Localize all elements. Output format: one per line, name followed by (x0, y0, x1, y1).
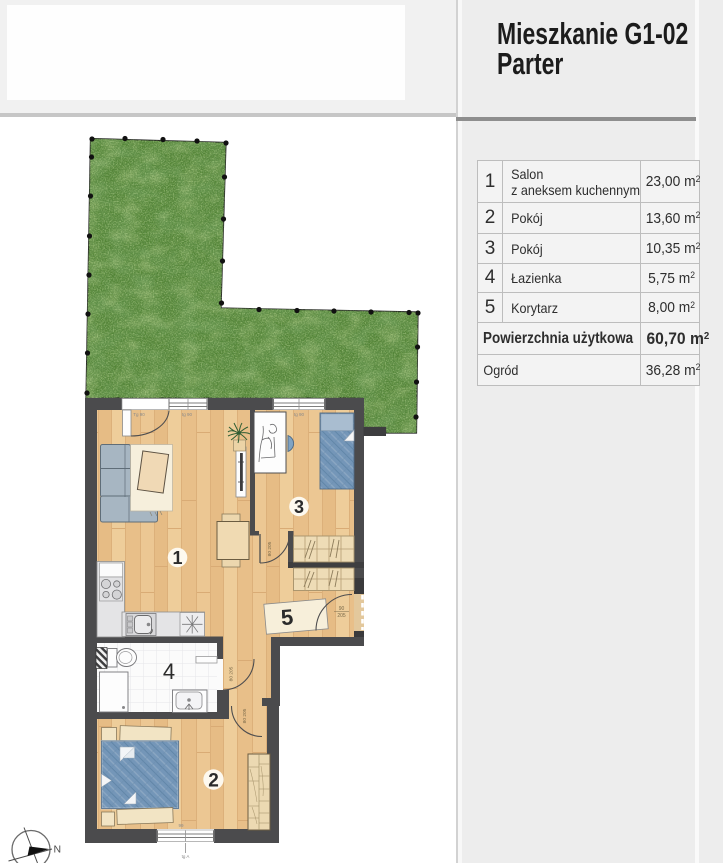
svg-text:tg 90: tg 90 (294, 412, 305, 417)
svg-text:4: 4 (163, 659, 175, 684)
svg-text:205: 205 (337, 613, 346, 619)
svg-text:80 205: 80 205 (242, 708, 248, 723)
svg-text:3: 3 (294, 497, 304, 517)
svg-text:5: 5 (280, 604, 294, 630)
svg-text:1: 1 (172, 548, 182, 568)
svg-text:tg 90: tg 90 (182, 412, 193, 417)
svg-text:tg A: tg A (182, 854, 190, 859)
svg-text:99: 99 (178, 823, 184, 828)
svg-text:N: N (54, 844, 62, 856)
svg-text:Tg 90: Tg 90 (133, 412, 145, 417)
svg-text:80 205: 80 205 (229, 666, 235, 681)
svg-text:2: 2 (208, 771, 219, 792)
svg-text:80 205: 80 205 (267, 541, 273, 556)
svg-text:90: 90 (339, 606, 345, 612)
